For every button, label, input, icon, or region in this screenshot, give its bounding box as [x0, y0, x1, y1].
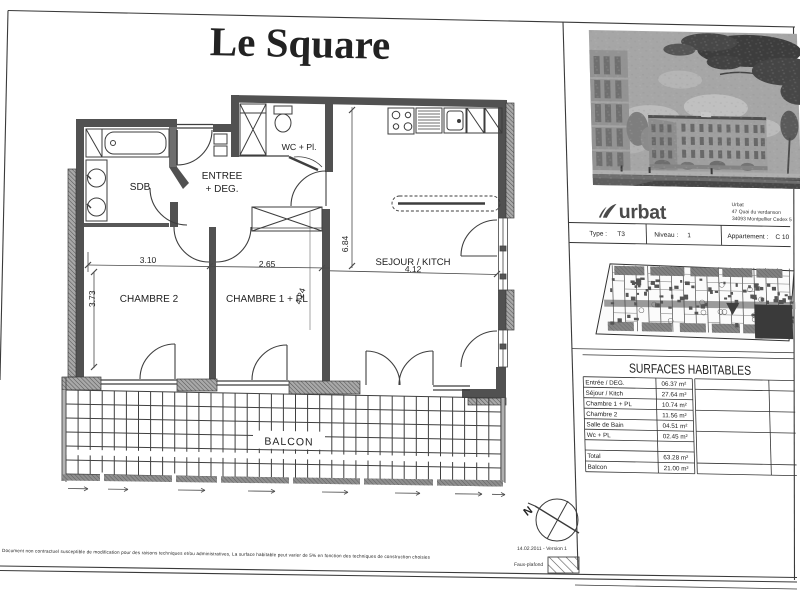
svg-text:11.56 m²: 11.56 m²	[662, 412, 687, 419]
svg-text:3.10: 3.10	[140, 255, 157, 265]
svg-text:+ DEG.: + DEG.	[206, 184, 239, 195]
svg-text:Document non contractuel susce: Document non contractuel susceptible de …	[2, 548, 431, 560]
svg-text:Le Square: Le Square	[210, 18, 391, 68]
svg-text:34093 Montpellier Cedex 5: 34093 Montpellier Cedex 5	[732, 216, 792, 223]
svg-text:Type :: Type :	[589, 230, 607, 237]
svg-text:Chambre 1 + PL: Chambre 1 + PL	[586, 400, 633, 408]
svg-text:21.00 m²: 21.00 m²	[664, 465, 689, 472]
svg-text:SURFACES HABITABLES: SURFACES HABITABLES	[629, 361, 752, 378]
svg-text:urbat: urbat	[618, 201, 667, 224]
svg-text:BALCON: BALCON	[264, 436, 313, 449]
svg-text:2.65: 2.65	[259, 259, 276, 269]
svg-text:Niveau :: Niveau :	[654, 232, 678, 239]
svg-text:C 10: C 10	[775, 234, 789, 241]
svg-text:Entrée / DEG.: Entrée / DEG.	[585, 379, 625, 387]
svg-text:Salle de Bain: Salle de Bain	[586, 421, 624, 429]
svg-text:63.28 m²: 63.28 m²	[663, 454, 688, 461]
svg-text:Chambre 2: Chambre 2	[586, 411, 618, 419]
svg-text:Wc + PL: Wc + PL	[587, 432, 612, 439]
svg-text:6.84: 6.84	[340, 235, 350, 252]
svg-text:SDB: SDB	[130, 182, 151, 193]
svg-text:CHAMBRE 2: CHAMBRE 2	[120, 294, 179, 305]
svg-text:ENTREE: ENTREE	[202, 171, 243, 182]
svg-text:T3: T3	[617, 231, 625, 238]
svg-text:Urbat: Urbat	[731, 202, 744, 208]
svg-text:47 Quai du verdanson: 47 Quai du verdanson	[732, 209, 782, 216]
svg-text:02.45 m²: 02.45 m²	[663, 433, 688, 440]
svg-text:04.51 m²: 04.51 m²	[662, 423, 687, 430]
svg-text:Balcon: Balcon	[588, 464, 608, 471]
svg-text:Séjour / Kitch: Séjour / Kitch	[586, 390, 624, 398]
svg-text:10.74 m²: 10.74 m²	[662, 402, 687, 409]
svg-text:Total: Total	[587, 453, 601, 460]
svg-text:27.64 m²: 27.64 m²	[662, 391, 687, 398]
svg-text:06.37 m²: 06.37 m²	[661, 381, 686, 388]
svg-text:N: N	[521, 504, 535, 518]
svg-text:4.12: 4.12	[405, 264, 422, 275]
svg-text:Appartement :: Appartement :	[727, 233, 768, 241]
svg-text:1: 1	[687, 232, 691, 239]
svg-text:14.02.2011 - Version 1: 14.02.2011 - Version 1	[517, 546, 567, 552]
svg-text:3.73: 3.73	[87, 290, 97, 307]
svg-text:Faux-plafond: Faux-plafond	[514, 562, 543, 568]
svg-text:WC + Pl.: WC + Pl.	[282, 142, 317, 152]
